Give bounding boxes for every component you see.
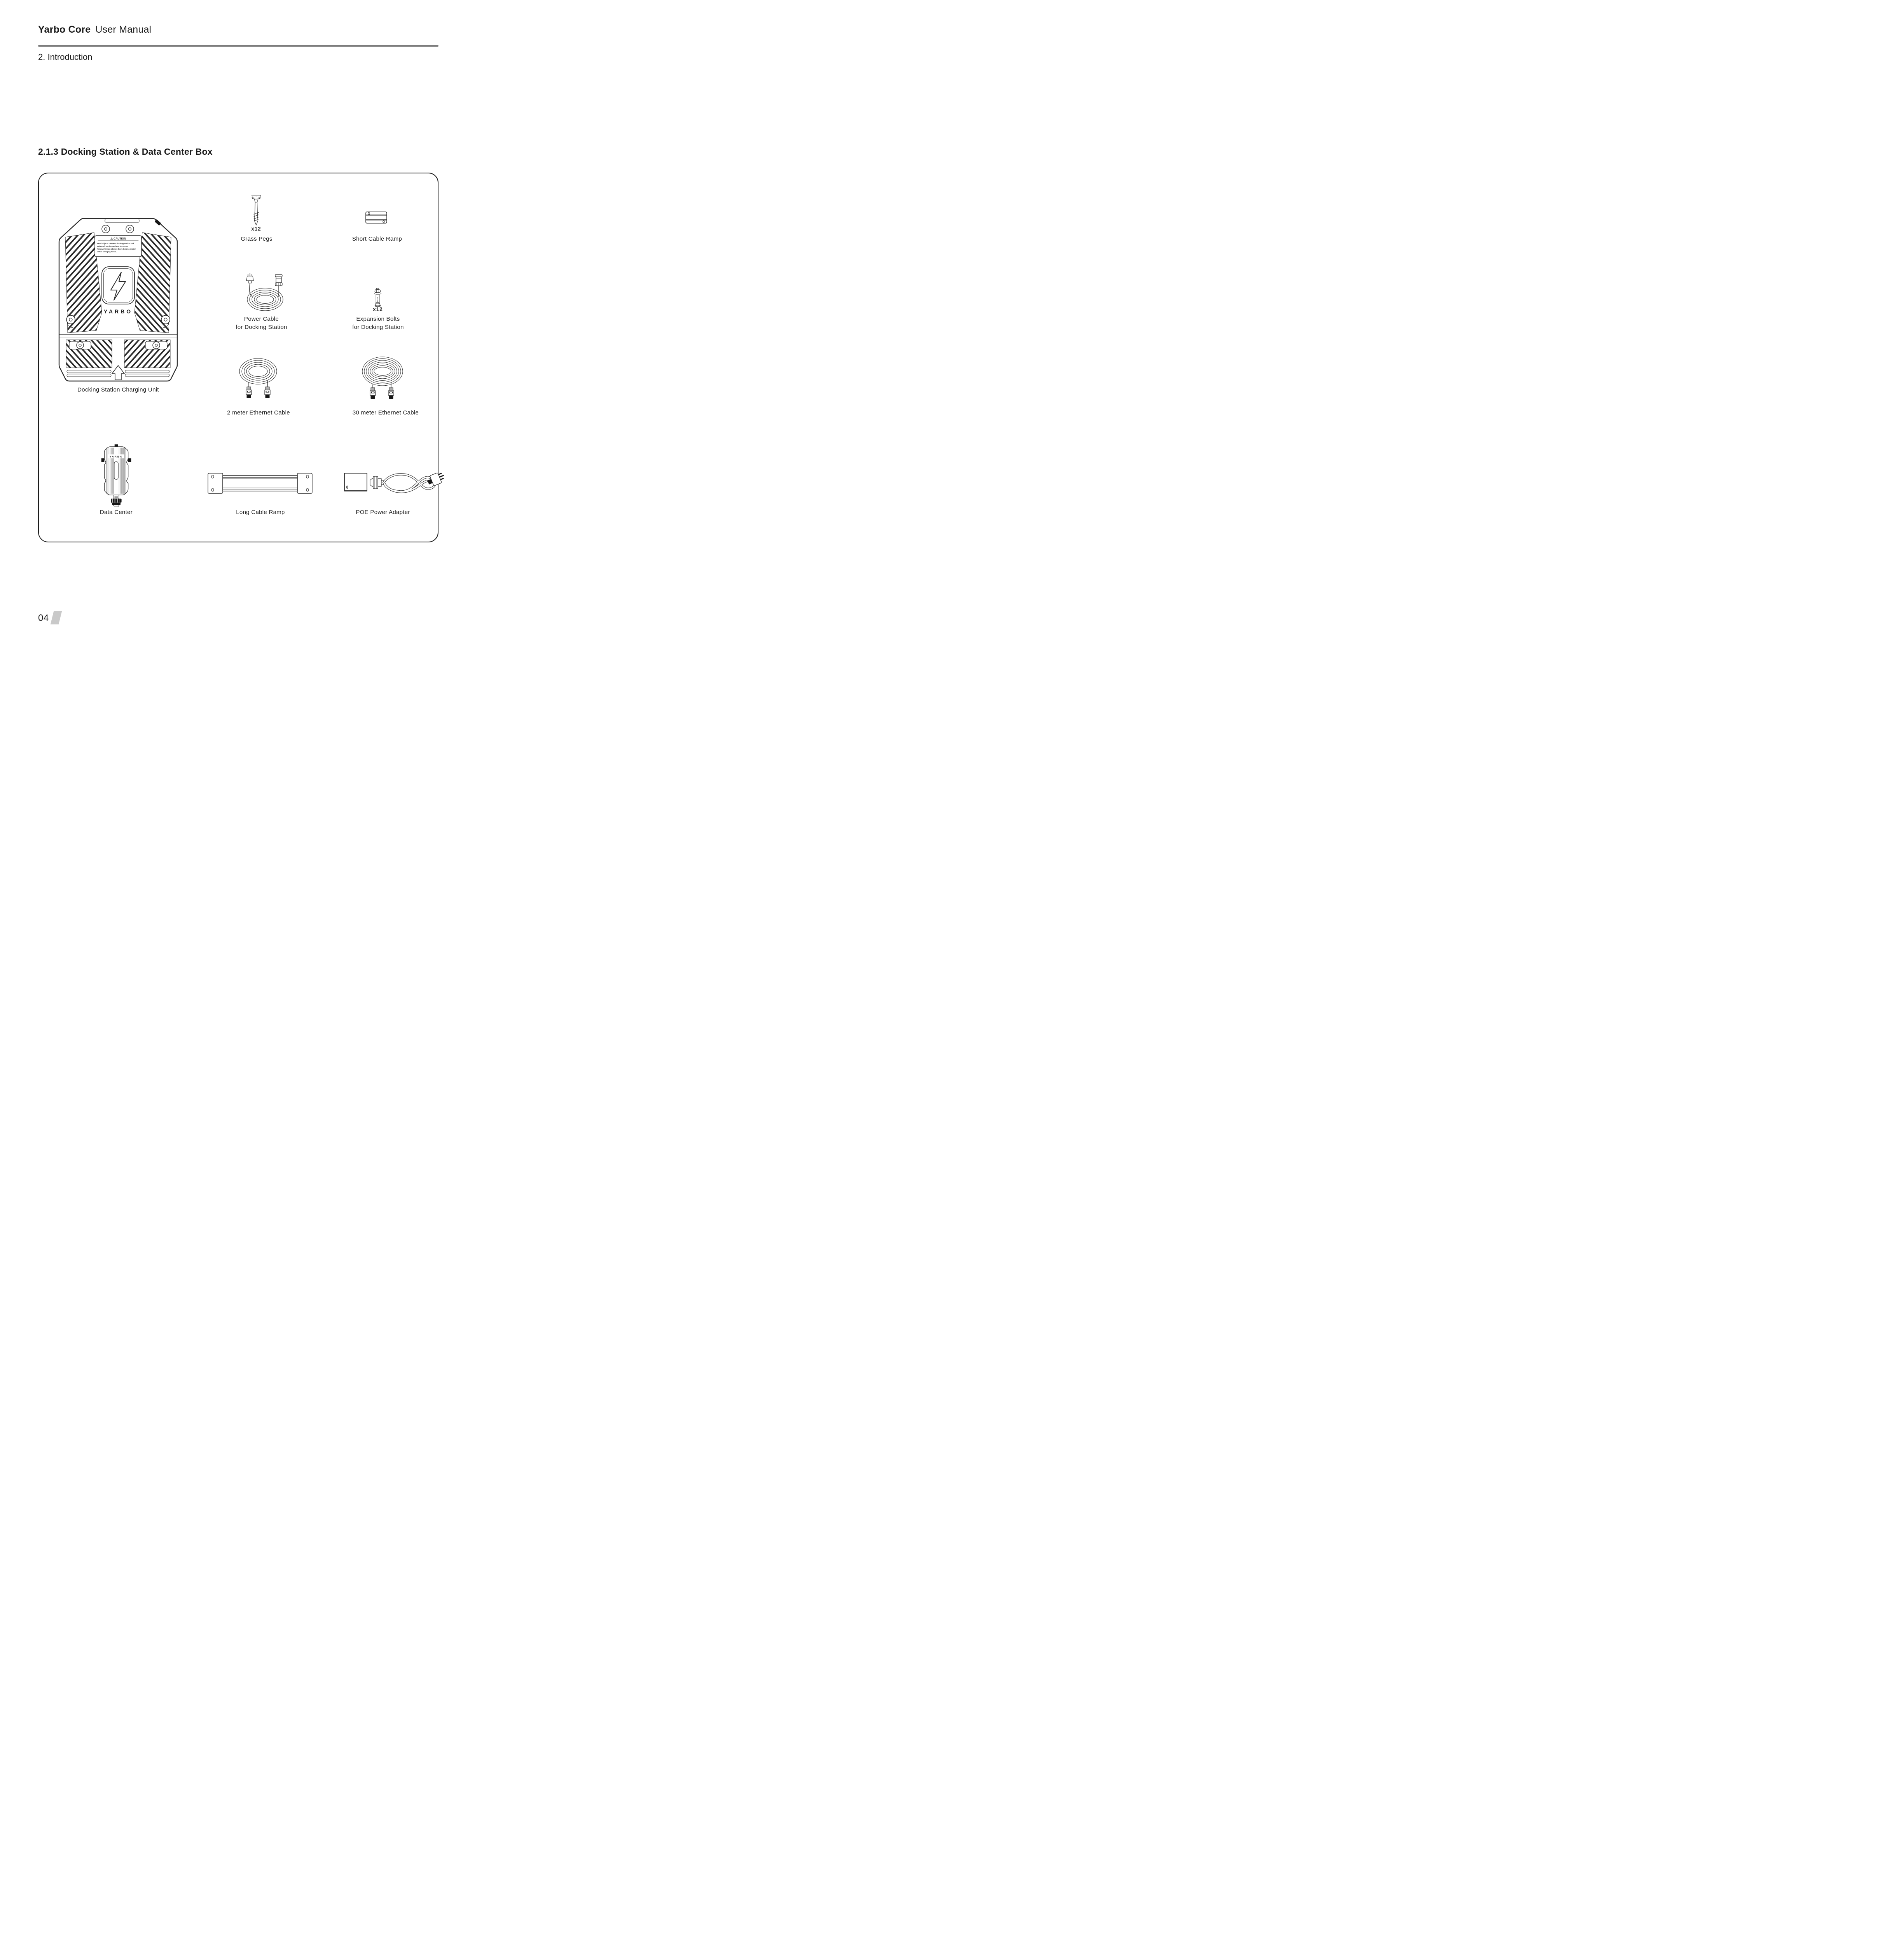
grass-peg-icon — [249, 194, 264, 226]
caution-line-3: Remove foreign objects from docking stat… — [97, 248, 136, 250]
manual-title: User Manual — [95, 24, 151, 35]
expansion-bolts-label: Expansion Bolts for Docking Station — [330, 315, 426, 331]
rj45-connector-left — [246, 387, 252, 398]
data-center-illustration: YARBO — [99, 444, 134, 507]
poe-adapter-icon — [344, 471, 445, 495]
caution-title: ⚠ CAUTION — [110, 237, 126, 240]
wall-plug — [426, 471, 445, 487]
brand-name: Yarbo Core — [38, 24, 91, 35]
poe-adapter-label: POE Power Adapter — [334, 508, 431, 516]
rj45-connector-left — [370, 388, 376, 399]
chapter-title: 2. Introduction — [38, 52, 92, 62]
expansion-bolt-illustration — [374, 288, 381, 307]
long-cable-ramp-label: Long Cable Ramp — [212, 508, 309, 516]
grass-pegs-qty: x12 — [237, 226, 276, 232]
caution-line-4: before charging Yarbo. — [97, 251, 117, 253]
ethernet-2m-label: 2 meter Ethernet Cable — [210, 409, 307, 417]
ethernet-2m-icon — [236, 356, 280, 399]
docking-station-label: Docking Station Charging Unit — [58, 386, 179, 394]
ethernet-30m-icon — [360, 354, 405, 400]
grass-pegs-label: Grass Pegs — [216, 235, 297, 243]
expansion-bolt-icon — [374, 288, 381, 307]
caution-line-2: Yarbo will get hot and can burn you. — [97, 245, 128, 247]
power-cable-label-line1: Power Cable — [214, 315, 309, 323]
docking-station-icon: ⚠ CAUTION Metal objects between docking … — [58, 216, 179, 383]
docking-station-illustration: ⚠ CAUTION Metal objects between docking … — [58, 216, 179, 383]
header-divider — [38, 45, 438, 47]
ethernet-30m-label: 30 meter Ethernet Cable — [335, 409, 436, 417]
caution-line-1: Metal objects between docking station an… — [97, 243, 134, 245]
data-center-logo-text: YARBO — [110, 456, 123, 458]
ethernet-30m-illustration — [360, 354, 405, 400]
poe-adapter-illustration — [344, 471, 445, 495]
data-center-label: Data Center — [85, 508, 147, 516]
expansion-bolts-label-line1: Expansion Bolts — [330, 315, 426, 323]
manual-page: Yarbo CoreUser Manual 2. Introduction 2.… — [0, 0, 476, 642]
short-cable-ramp-illustration — [365, 212, 387, 224]
page-number-slab — [51, 611, 62, 624]
rj45-connector-right — [265, 387, 270, 398]
data-center-icon: YARBO — [99, 444, 134, 507]
short-cable-ramp-icon — [365, 212, 387, 224]
expansion-bolts-qty: x12 — [358, 306, 397, 312]
section-heading: 2.1.3 Docking Station & Data Center Box — [38, 147, 213, 157]
power-cable-icon — [242, 273, 290, 313]
grass-peg-illustration — [249, 194, 264, 226]
long-cable-ramp-icon — [207, 472, 313, 495]
expansion-bolts-label-line2: for Docking Station — [330, 323, 426, 331]
power-cable-label-line2: for Docking Station — [214, 323, 309, 331]
power-cable-label: Power Cable for Docking Station — [214, 315, 309, 331]
rj45-connector-right — [388, 388, 394, 399]
page-number: 04 — [38, 613, 49, 624]
short-cable-ramp-label: Short Cable Ramp — [328, 235, 426, 243]
ethernet-2m-illustration — [236, 356, 280, 399]
power-cable-illustration — [242, 273, 290, 313]
long-cable-ramp-illustration — [207, 472, 313, 495]
yarbo-logo-text: YARBO — [104, 308, 133, 315]
page-header: Yarbo CoreUser Manual — [38, 24, 151, 35]
